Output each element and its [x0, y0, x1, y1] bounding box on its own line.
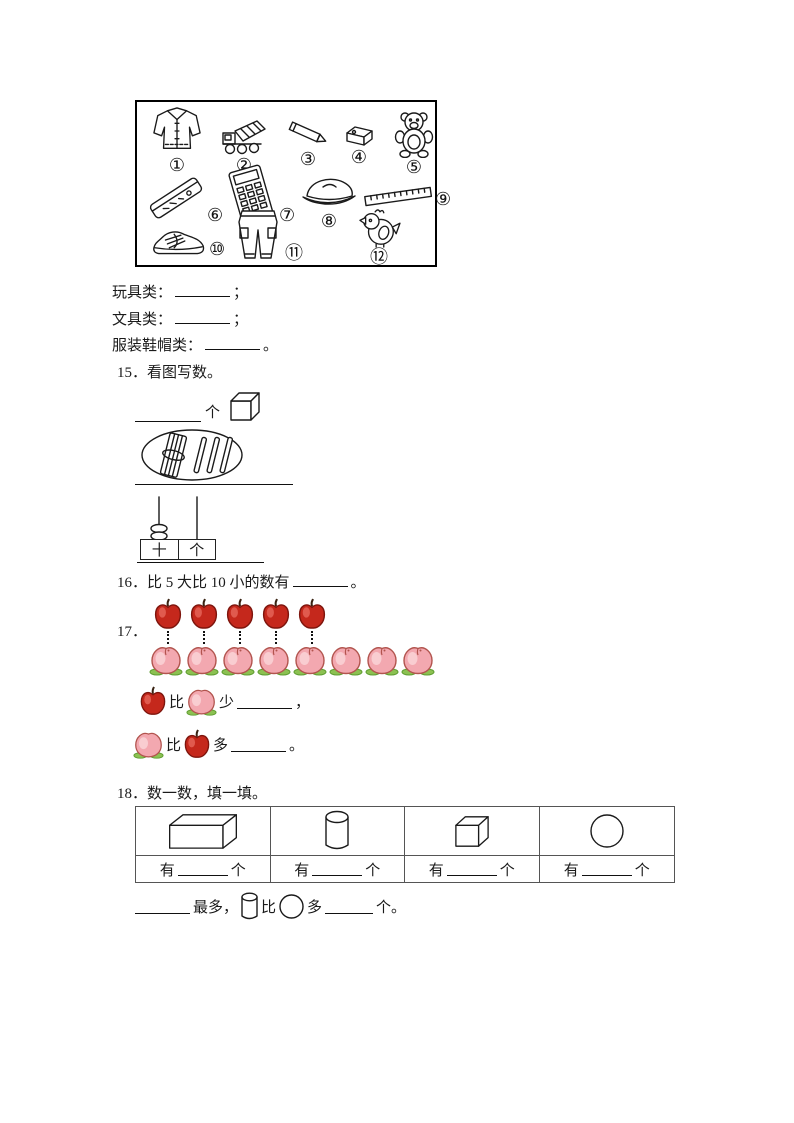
peach-icon	[149, 645, 183, 676]
item-number: ⑫	[370, 248, 388, 266]
eraser-icon	[343, 124, 375, 148]
shoe-icon	[151, 224, 207, 258]
q18-title-line: 18． 数一数，填一填。	[117, 782, 267, 803]
item-ruler: ⑨	[363, 184, 451, 208]
cuboid-cell	[136, 807, 271, 855]
peach-icon	[365, 645, 399, 676]
category-label: 文具类：	[112, 308, 172, 329]
circle-shape	[588, 812, 626, 850]
peach-icon	[257, 645, 291, 676]
q15-unit: 个	[205, 401, 220, 422]
category-label: 服装鞋帽类：	[112, 334, 202, 355]
count-prefix: 有	[160, 859, 175, 880]
apple-icon	[183, 729, 211, 760]
q15-sticks-figure	[140, 428, 244, 487]
q16-line: 16． 比 5 大比 10 小的数有 。	[117, 571, 366, 592]
sentence-suffix: 。	[289, 734, 304, 755]
cube-shape	[452, 813, 492, 849]
most-answer-blank[interactable]	[135, 900, 190, 914]
peach-item	[328, 645, 364, 676]
classification-items-box: ① ② ③	[135, 100, 437, 267]
q15-title: 看图写数。	[147, 361, 222, 382]
apple-icon	[153, 598, 183, 631]
category-line-clothing: 服装鞋帽类： 。	[112, 334, 278, 355]
toy-truck-icon	[221, 118, 267, 156]
peach-item	[184, 645, 220, 676]
peach-icon	[185, 645, 219, 676]
count-prefix: 有	[564, 859, 579, 880]
q15-number: 15．	[117, 361, 147, 382]
apple-item	[150, 598, 186, 644]
match-dotted-line	[167, 631, 169, 644]
q18-number: 18．	[117, 782, 147, 803]
cylinder-count-blank[interactable]	[312, 862, 362, 876]
q15-cube-line: 个	[135, 390, 262, 422]
q16-suffix: 。	[351, 571, 366, 592]
apple-icon	[225, 598, 255, 631]
counting-sticks-icon	[140, 428, 244, 482]
sentence-suffix: ，	[295, 691, 310, 712]
compare-word: 多	[213, 734, 228, 755]
match-dotted-line	[203, 631, 205, 644]
item-jacket: ①	[151, 106, 203, 174]
item-cap: ⑧	[301, 174, 357, 230]
q16-number: 16．	[117, 571, 147, 592]
apple-icon	[297, 598, 327, 631]
q17-sentence-1: 比 少 ，	[137, 686, 310, 717]
apple-icon	[139, 686, 167, 717]
cube-count-blank[interactable]	[447, 862, 497, 876]
stationery-answer-blank[interactable]	[175, 310, 230, 324]
abacus-answer-line[interactable]	[137, 562, 264, 563]
final-suffix: 个。	[376, 896, 406, 917]
q15-title-line: 15． 看图写数。	[117, 361, 222, 382]
category-line-stationery: 文具类： ；	[112, 308, 248, 329]
most-label: 最多，	[193, 896, 238, 917]
q16-text: 比 5 大比 10 小的数有	[147, 571, 290, 592]
count-suffix: 个	[365, 859, 380, 880]
item-teddy-bear: ⑤	[393, 110, 435, 176]
apple-item	[186, 598, 222, 644]
item-eraser: ④	[343, 124, 375, 166]
q17-answer-blank-2[interactable]	[231, 738, 286, 752]
cylinder-shape	[324, 810, 350, 852]
q17-figure: 17．	[117, 598, 677, 678]
match-dotted-line	[275, 631, 277, 644]
cuboid-count-blank[interactable]	[178, 862, 228, 876]
item-pencil-case: ⑥	[147, 172, 223, 224]
q17-sentence-2: 比 多 。	[131, 729, 304, 760]
peach-item	[292, 645, 328, 676]
category-suffix: 。	[263, 334, 278, 355]
peach-icon	[221, 645, 255, 676]
q18-title: 数一数，填一填。	[147, 782, 267, 803]
count-suffix: 个	[500, 859, 515, 880]
item-number: ⑩	[209, 240, 225, 258]
category-label: 玩具类：	[112, 281, 172, 302]
apple-item	[294, 598, 330, 644]
item-shoe: ⑩	[151, 224, 225, 258]
peach-item	[256, 645, 292, 676]
cube-icon	[228, 390, 262, 422]
ruler-icon	[363, 184, 433, 208]
peach-icon	[293, 645, 327, 676]
count-prefix: 有	[429, 859, 444, 880]
q17-answer-blank-1[interactable]	[237, 695, 292, 709]
match-dotted-line	[311, 631, 313, 644]
peach-icon	[329, 645, 363, 676]
cuboid-count-cell: 有 个	[136, 855, 271, 882]
q16-answer-blank[interactable]	[293, 573, 348, 587]
peaches-row	[148, 645, 436, 676]
item-number: ⑪	[285, 244, 303, 262]
cylinder-small-icon	[240, 892, 259, 921]
peach-icon	[133, 731, 164, 759]
abacus-ones-cell: 个	[178, 540, 216, 559]
circle-cell	[540, 807, 675, 855]
cylinder-cell	[271, 807, 406, 855]
count-suffix: 个	[231, 859, 246, 880]
item-number: ③	[300, 150, 316, 168]
abacus-place-value-box: 十 个	[140, 539, 216, 560]
item-number: ⑤	[406, 158, 422, 176]
compare-word: 少	[219, 691, 234, 712]
item-number: ④	[351, 148, 367, 166]
worksheet-page: ① ② ③	[0, 0, 794, 1123]
category-suffix: ；	[233, 308, 248, 329]
abacus-rods-icon	[140, 495, 216, 539]
apple-item	[222, 598, 258, 644]
peach-icon	[186, 688, 217, 716]
count-prefix: 有	[294, 859, 309, 880]
pants-icon	[233, 208, 283, 262]
compare-word: 比	[261, 896, 276, 917]
q15-abacus-figure: 十 个	[140, 495, 216, 560]
peach-item	[148, 645, 184, 676]
toy-chick-icon	[357, 208, 401, 248]
apple-icon	[189, 598, 219, 631]
match-dotted-line	[239, 631, 241, 644]
cube-count-blank[interactable]	[135, 408, 201, 422]
toys-answer-blank[interactable]	[175, 283, 230, 297]
peach-item	[364, 645, 400, 676]
circle-count-blank[interactable]	[582, 862, 632, 876]
count-suffix: 个	[635, 859, 650, 880]
pencil-icon	[287, 120, 329, 150]
item-number: ⑧	[321, 212, 337, 230]
teddy-bear-icon	[393, 110, 435, 158]
circle-count-cell: 有 个	[540, 855, 675, 882]
item-number: ⑨	[435, 190, 451, 208]
abacus-tens-cell: 十	[141, 540, 178, 559]
cube-count-cell: 有 个	[405, 855, 540, 882]
item-pants: ⑪	[233, 208, 303, 262]
peach-icon	[401, 645, 435, 676]
cap-icon	[301, 174, 357, 212]
apple-item	[258, 598, 294, 644]
compare-word: 比	[169, 691, 184, 712]
q17-number: 17．	[117, 620, 147, 641]
apples-row	[150, 598, 330, 644]
clothing-answer-blank[interactable]	[205, 336, 260, 350]
compare-word: 多	[307, 896, 322, 917]
category-line-toys: 玩具类： ；	[112, 281, 248, 302]
cuboid-shape	[166, 811, 240, 851]
item-toy-chick: ⑫	[357, 208, 401, 266]
item-number: ⑥	[207, 206, 223, 224]
sticks-answer-line[interactable]	[135, 484, 293, 485]
cube-cell	[405, 807, 540, 855]
circle-small-icon	[278, 893, 305, 920]
difference-answer-blank[interactable]	[325, 900, 373, 914]
category-suffix: ；	[233, 281, 248, 302]
compare-word: 比	[166, 734, 181, 755]
peach-item	[220, 645, 256, 676]
apple-icon	[261, 598, 291, 631]
peach-item	[400, 645, 436, 676]
shape-count-table: 有 个 有 个 有 个 有 个	[135, 806, 675, 883]
pencil-case-icon	[147, 172, 205, 224]
cylinder-count-cell: 有 个	[271, 855, 406, 882]
item-pencil: ③	[287, 120, 329, 168]
q18-final-line: 最多， 比 多 个。	[135, 892, 406, 921]
jacket-icon	[151, 106, 203, 156]
